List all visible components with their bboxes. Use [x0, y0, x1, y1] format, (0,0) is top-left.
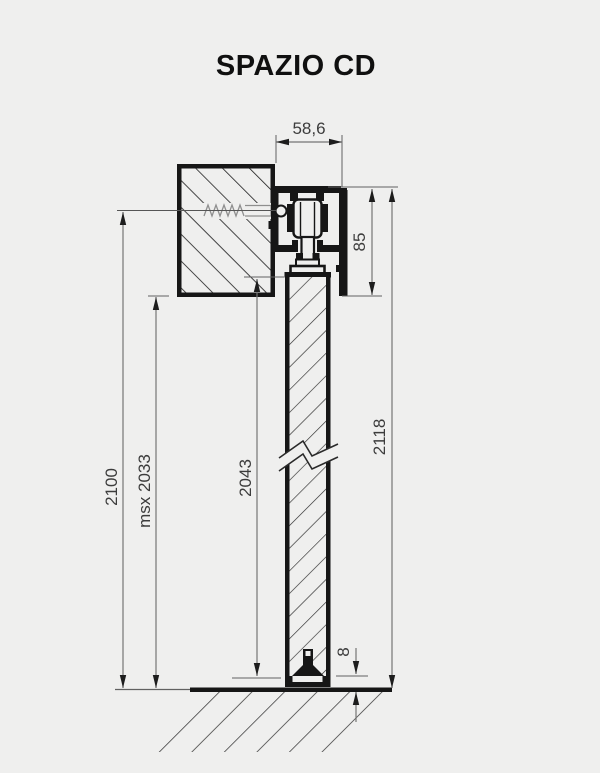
roller-carriage [287, 200, 328, 238]
dim-door-height: 2043 [232, 277, 284, 678]
dim-label-floor-gap: 8 [334, 647, 353, 656]
technical-drawing: 58,6 85 2118 2100 msx 2033 [0, 0, 600, 773]
dim-total-height: 2118 [370, 189, 395, 688]
dim-label-max-height: msx 2033 [135, 454, 154, 528]
dim-label-opening-height: 2100 [102, 468, 121, 506]
dim-label-total-height: 2118 [370, 419, 389, 456]
dim-label-track-depth: 58,6 [292, 119, 325, 138]
dim-max-height: msx 2033 [135, 296, 169, 688]
wall-section [179, 166, 273, 295]
dim-label-door-height: 2043 [236, 459, 255, 497]
door-panel [279, 276, 338, 687]
dim-track-height: 85 [342, 189, 382, 296]
dim-label-track-height: 85 [350, 233, 369, 252]
floor-hatch [0, 692, 600, 754]
floor [0, 688, 600, 755]
dim-track-depth: 58,6 [276, 119, 342, 187]
